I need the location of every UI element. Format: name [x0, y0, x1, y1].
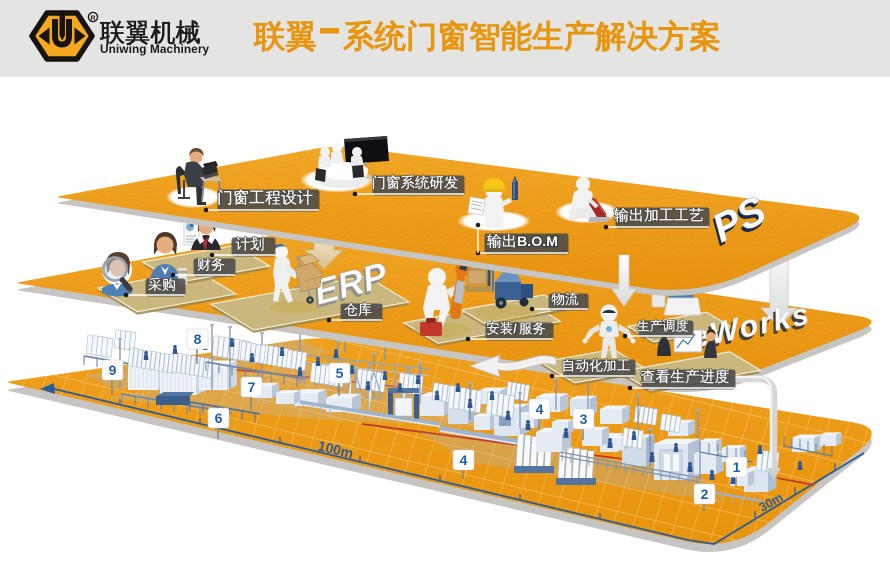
svg-text:B.O.M: B.O.M: [517, 234, 558, 250]
svg-text:/: /: [513, 321, 517, 336]
svg-text:5: 5: [336, 365, 344, 381]
svg-text:9: 9: [109, 362, 117, 378]
svg-text:R: R: [91, 15, 96, 22]
svg-text:2: 2: [701, 486, 709, 502]
svg-text:4: 4: [536, 401, 544, 417]
svg-text:3: 3: [580, 411, 588, 427]
svg-text:4: 4: [460, 452, 468, 468]
svg-text:1: 1: [733, 459, 741, 475]
svg-text:Uniwing Machinery: Uniwing Machinery: [100, 42, 210, 56]
svg-text:6: 6: [215, 410, 223, 426]
svg-text:8: 8: [194, 331, 202, 347]
svg-text:7: 7: [248, 379, 256, 395]
